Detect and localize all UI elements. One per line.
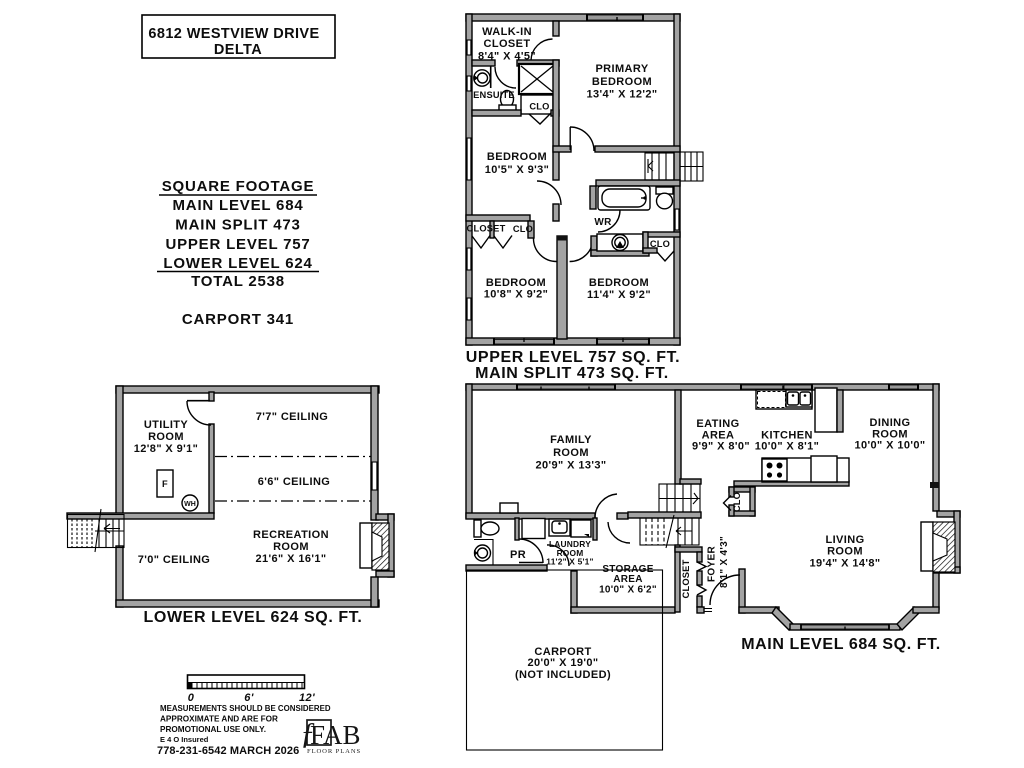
- svg-text:6'6" CEILING: 6'6" CEILING: [258, 476, 331, 488]
- svg-text:E 4 O Insured: E 4 O Insured: [160, 735, 209, 744]
- svg-text:CLOSET: CLOSET: [467, 224, 506, 234]
- svg-text:11'4" X 9'2": 11'4" X 9'2": [587, 289, 651, 301]
- svg-text:CLOSET: CLOSET: [681, 559, 691, 598]
- svg-text:WALK-IN: WALK-IN: [482, 26, 532, 38]
- svg-text:MEASUREMENTS SHOULD BE CONSIDE: MEASUREMENTS SHOULD BE CONSIDERED: [160, 704, 331, 713]
- svg-text:CLOSET: CLOSET: [483, 38, 530, 50]
- svg-text:ROOM: ROOM: [273, 541, 309, 553]
- svg-text:CARPORT 341: CARPORT 341: [182, 311, 294, 328]
- svg-text:FOYER: FOYER: [707, 546, 718, 582]
- svg-text:BEDROOM: BEDROOM: [487, 151, 547, 163]
- svg-text:CLO: CLO: [650, 239, 670, 249]
- svg-text:CLO: CLO: [513, 224, 533, 234]
- svg-text:LIVING: LIVING: [825, 534, 864, 546]
- svg-text:10'5" X 9'3": 10'5" X 9'3": [485, 164, 550, 176]
- svg-text:UTILITY: UTILITY: [144, 419, 189, 431]
- svg-text:(NOT INCLUDED): (NOT INCLUDED): [515, 669, 611, 681]
- svg-text:0: 0: [188, 692, 195, 704]
- svg-text:BEDROOM: BEDROOM: [589, 277, 649, 289]
- svg-text:LOWER LEVEL 624: LOWER LEVEL 624: [163, 255, 312, 272]
- svg-text:DINING: DINING: [870, 417, 911, 429]
- svg-text:6812 WESTVIEW DRIVE: 6812 WESTVIEW DRIVE: [148, 26, 319, 42]
- svg-text:ƒ: ƒ: [300, 715, 316, 750]
- svg-text:FAB: FAB: [310, 720, 361, 750]
- svg-text:6': 6': [244, 692, 254, 704]
- svg-text:ROOM: ROOM: [148, 431, 184, 443]
- svg-text:10'0" X 6'2": 10'0" X 6'2": [599, 585, 657, 596]
- svg-text:UPPER LEVEL 757 SQ. FT.: UPPER LEVEL 757 SQ. FT.: [466, 349, 680, 366]
- svg-text:19'4" X 14'8": 19'4" X 14'8": [809, 558, 880, 570]
- svg-text:PROMOTIONAL USE ONLY.: PROMOTIONAL USE ONLY.: [160, 725, 266, 734]
- svg-text:PR: PR: [510, 549, 526, 561]
- svg-text:F: F: [162, 479, 168, 489]
- svg-text:SQUARE FOOTAGE: SQUARE FOOTAGE: [162, 178, 315, 195]
- svg-text:MAIN LEVEL 684 SQ. FT.: MAIN LEVEL 684 SQ. FT.: [741, 636, 941, 653]
- svg-text:20'9" X 13'3": 20'9" X 13'3": [535, 460, 606, 472]
- svg-text:CLO: CLO: [732, 492, 742, 512]
- svg-text:13'4" X 12'2": 13'4" X 12'2": [586, 89, 657, 101]
- svg-text:WR: WR: [594, 217, 612, 228]
- svg-text:BEDROOM: BEDROOM: [592, 76, 652, 88]
- svg-text:11'2" X 5'1": 11'2" X 5'1": [546, 557, 593, 567]
- svg-text:APPROXIMATE AND ARE FOR: APPROXIMATE AND ARE FOR: [160, 715, 278, 724]
- svg-text:ROOM: ROOM: [827, 546, 863, 558]
- svg-text:MAIN SPLIT 473: MAIN SPLIT 473: [175, 217, 300, 234]
- svg-text:FLOOR PLANS: FLOOR PLANS: [307, 748, 361, 755]
- svg-text:8'4" X 4'5": 8'4" X 4'5": [478, 51, 536, 63]
- svg-text:CLO: CLO: [529, 102, 549, 112]
- svg-text:UPPER LEVEL 757: UPPER LEVEL 757: [165, 236, 310, 253]
- svg-text:ROOM: ROOM: [553, 447, 589, 459]
- svg-text:10'8" X 9'2": 10'8" X 9'2": [484, 289, 549, 301]
- svg-text:AREA: AREA: [613, 574, 643, 585]
- svg-text:ENSUITE: ENSUITE: [473, 90, 515, 100]
- svg-text:12': 12': [299, 692, 315, 704]
- svg-text:21'6" X 16'1": 21'6" X 16'1": [255, 553, 326, 565]
- svg-text:8'1" X 4'3": 8'1" X 4'3": [719, 536, 730, 588]
- svg-text:EATING: EATING: [696, 418, 739, 430]
- svg-text:20'0" X 19'0": 20'0" X 19'0": [527, 657, 598, 669]
- svg-text:MAIN LEVEL 684: MAIN LEVEL 684: [173, 197, 304, 214]
- svg-text:10'0" X 10'0": 10'0" X 10'0": [854, 440, 925, 452]
- svg-text:7'7" CEILING: 7'7" CEILING: [256, 411, 329, 423]
- svg-text:778-231-6542 MARCH 2026: 778-231-6542 MARCH 2026: [157, 745, 299, 757]
- svg-text:WH: WH: [184, 501, 196, 508]
- svg-text:12'8" X 9'1": 12'8" X 9'1": [134, 443, 199, 455]
- svg-text:7'0" CEILING: 7'0" CEILING: [138, 554, 211, 566]
- svg-text:FAMILY: FAMILY: [550, 434, 592, 446]
- svg-text:DELTA: DELTA: [214, 42, 262, 58]
- svg-text:LOWER LEVEL 624 SQ. FT.: LOWER LEVEL 624 SQ. FT.: [144, 609, 363, 626]
- svg-text:BEDROOM: BEDROOM: [486, 277, 546, 289]
- svg-text:9'9" X 8'0": 9'9" X 8'0": [692, 441, 750, 453]
- svg-text:TOTAL 2538: TOTAL 2538: [191, 273, 285, 290]
- svg-text:RECREATION: RECREATION: [253, 529, 329, 541]
- svg-text:MAIN SPLIT 473 SQ. FT.: MAIN SPLIT 473 SQ. FT.: [475, 365, 669, 382]
- svg-text:PRIMARY: PRIMARY: [595, 63, 648, 75]
- svg-text:10'0" X 8'1": 10'0" X 8'1": [755, 441, 820, 453]
